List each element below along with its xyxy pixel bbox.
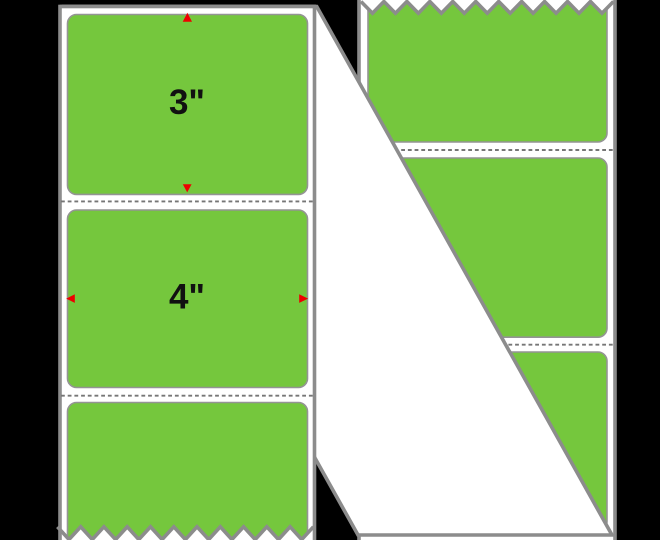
svg-text:4": 4" xyxy=(169,278,205,317)
svg-text:3": 3" xyxy=(169,83,205,122)
